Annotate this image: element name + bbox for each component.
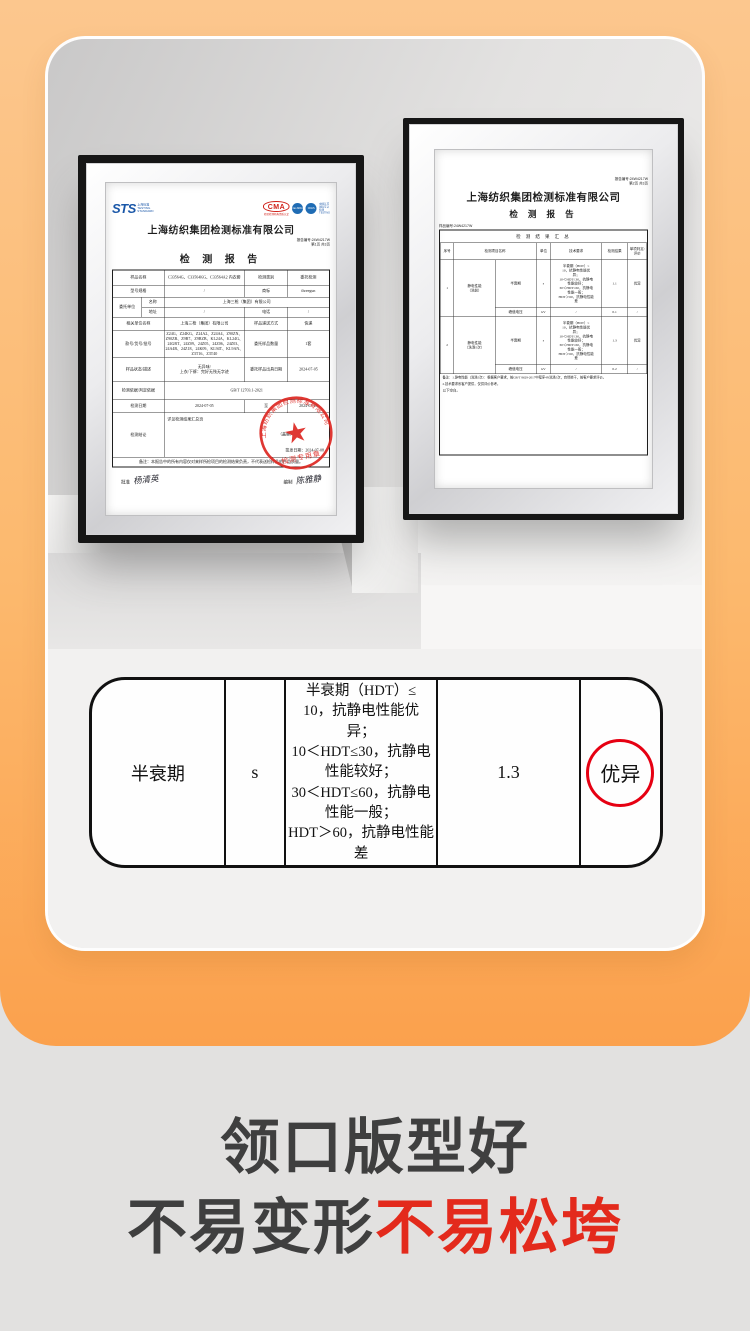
right-certificate-paper: 报告编号:24W4217W 第2页 共3页 上海纺织集团检测标准有限公司 检 测… (435, 150, 652, 488)
display-stage: STS 上海标准 TESTING STANDARD CMA 检验检测机构资质认定… (45, 36, 705, 951)
left-certificate-frame: STS 上海标准 TESTING STANDARD CMA 检验检测机构资质认定… (78, 155, 364, 543)
sample-number: 样品编号:24W4217W (439, 224, 648, 229)
cell-label: 商标 (245, 285, 288, 297)
cell-requirement: 半衰期（HDT）≤ 10，抗静电性能优 异； 10＜HDT≤30，抗静电 性能较… (551, 317, 602, 365)
cell-value: threegun (288, 285, 330, 297)
cell-unit: s (536, 260, 551, 308)
cell-eval: / (628, 365, 647, 374)
header-cell: 技术要求 (551, 243, 602, 260)
cell-label: 相关单位名称 (113, 317, 165, 330)
cell-label: 地址 (142, 307, 165, 317)
certification-logos: STS 上海标准 TESTING STANDARD CMA 检验检测机构资质认定… (112, 197, 330, 220)
cell-value: 委托检测 (288, 270, 330, 285)
caption-line-1: 领口版型好 (0, 1108, 750, 1188)
cell-no: 2 (440, 317, 454, 374)
cell-unit: kV (536, 365, 551, 374)
left-frame-mat: STS 上海标准 TESTING STANDARD CMA 检验检测机构资质认定… (86, 163, 356, 535)
approver-signature: 批准 杨清英 (121, 473, 159, 486)
sts-logo-subtext: 上海标准 TESTING STANDARD (137, 203, 153, 213)
header-cell: 检测项目名称 (454, 243, 536, 260)
table-row: 地址 / 电话 / (113, 307, 330, 317)
cma-oval-icon: CMA (263, 201, 289, 212)
report-meta: 报告编号:24W4217W 第2页 共3页 (439, 177, 648, 186)
cell-value: / (164, 307, 245, 317)
cell-eval: 优异 (628, 260, 647, 308)
cell-label: 委托样品出具日期 (245, 358, 288, 382)
header-cell: 检测结果 (601, 243, 627, 260)
cell-label: 检测依据/判定依据 (113, 382, 165, 400)
cell-item: 峰值电压 (495, 365, 536, 374)
sts-logo-text: STS (112, 201, 136, 217)
cell-result: 0.2 (601, 365, 627, 374)
page-number: 第2页 共3页 (439, 182, 648, 187)
signature-handwriting: 陈雅静 (295, 471, 322, 486)
cell-result: 1.1 (601, 260, 627, 308)
cma-subtext: 检验检测机构资质认定 (264, 213, 289, 217)
half-life-summary-table: 半衰期 s 半衰期（HDT）≤ 10，抗静电性能优 异； 10＜HDT≤30，抗… (89, 677, 663, 868)
accreditation-badges: CMA 检验检测机构资质认定 ilac-MRA CNAS 中国认可 国际互认 检… (263, 201, 330, 216)
results-box: 检 测 结 果 汇 总 序号 检测项目名称 单位 技术要求 检测结果 单项判定/… (439, 230, 648, 456)
cell-unit: s (536, 317, 551, 365)
conclusion-text: 详见检测结果汇总页 (167, 417, 203, 422)
table-row: 样品状态/描述 无异味/ 上衣/下裤：完好无残无字迹 委托样品出具日期 2024… (113, 358, 330, 382)
summary-eval: 优异 (579, 680, 660, 865)
table-title: 检 测 结 果 汇 总 (440, 231, 647, 243)
table-title-row: 检 测 结 果 汇 总 (440, 231, 647, 243)
cell-label: 电话 (245, 307, 288, 317)
cell-value: C33564G、C33564KG、C33564A2 内衣套 (164, 270, 245, 285)
cell-value: / (164, 285, 245, 297)
cell-label: 型号规格 (113, 285, 165, 297)
summary-result: 1.3 (436, 680, 579, 865)
cell-value: 2024-07-05 (164, 400, 245, 413)
cell-value: Z24G、Z24KG、Z24A2、Z24A4、Z90ZN、Z90ZB、Z9B7、… (164, 330, 245, 358)
caption-line2-red: 不易松垮 (375, 1194, 623, 1261)
table-row: 相关单位名称 上海三枪（集团）有限公司 样品递送方式 快递 (113, 317, 330, 330)
lab-name: 上海纺织集团检测标准有限公司 (112, 222, 330, 237)
sts-logo: STS 上海标准 TESTING STANDARD (112, 201, 154, 217)
table-row: 样品名称 C33564G、C33564KG、C33564A2 内衣套 检测类别 … (113, 270, 330, 285)
summary-item: 半衰期 (92, 680, 224, 865)
table-row: 款号/货号/批号 Z24G、Z24KG、Z24A2、Z24A4、Z90ZN、Z9… (113, 330, 330, 358)
cell-value: 无异味/ 上衣/下裤：完好无残无字迹 (164, 358, 245, 382)
cell-label: 样品递送方式 (245, 317, 288, 330)
cell-no: 1 (440, 260, 454, 317)
cell-item: 半衰期 (495, 317, 536, 365)
cell-requirement: / (551, 308, 602, 317)
report-title: 检 测 报 告 (439, 207, 648, 220)
summary-requirement: 半衰期（HDT）≤ 10，抗静电性能优 异； 10＜HDT≤30，抗静电 性能较… (284, 680, 436, 865)
ilac-mra-badge-icon: ilac-MRA (292, 203, 303, 214)
eval-text: 优异 (600, 758, 640, 787)
cell-value: / (288, 307, 330, 317)
summary-unit: s (224, 680, 284, 865)
cell-label: 样品状态/描述 (113, 358, 165, 382)
cnas-badge-icon: CNAS (306, 203, 317, 214)
cell-eval: 优异 (628, 317, 647, 365)
header-cell: 序号 (440, 243, 454, 260)
left-certificate-paper: STS 上海标准 TESTING STANDARD CMA 检验检测机构资质认定… (106, 183, 336, 515)
cell-requirement: / (551, 365, 602, 374)
results-table: 检 测 结 果 汇 总 序号 检测项目名称 单位 技术要求 检测结果 单项判定/… (440, 231, 647, 375)
cell-item-group: 静电性能 （洗涤5次） (454, 317, 495, 374)
cell-item-group: 静电性能 （洗前） (454, 260, 495, 317)
table-row: 1 静电性能 （洗前） 半衰期 s 半衰期（HDT）≤ 10，抗静电性能优 异；… (440, 260, 647, 308)
cell-unit: kV (536, 308, 551, 317)
cell-value: 1套 (288, 330, 330, 358)
cell-value: 上海三枪（集团）有限公司 (164, 297, 329, 307)
cell-label: 检测日期 (113, 400, 165, 413)
signature-handwriting: 杨清英 (132, 471, 159, 486)
page-number: 第1页 共3页 (112, 243, 330, 248)
table-header-row: 序号 检测项目名称 单位 技术要求 检测结果 单项判定/ 评价 (440, 243, 647, 260)
lab-name: 上海纺织集团检测标准有限公司 (439, 189, 648, 204)
accreditation-note: 中国认可 国际互认 检测 TESTING (319, 203, 330, 215)
report-meta: 报告编号:24W4217W 第1页 共3页 (112, 238, 330, 247)
table-row: 委托单位 名称 上海三枪（集团）有限公司 (113, 297, 330, 307)
right-certificate-frame: 报告编号:24W4217W 第2页 共3页 上海纺织集团检测标准有限公司 检 测… (403, 118, 684, 520)
caption-line-2: 不易变形不易松垮 (0, 1188, 750, 1268)
cell-eval: / (628, 308, 647, 317)
cell-result: 1.3 (601, 317, 627, 365)
cell-label: 样品名称 (113, 270, 165, 285)
svg-text:★: ★ (281, 415, 312, 450)
table-row: 2 静电性能 （洗涤5次） 半衰期 s 半衰期（HDT）≤ 10，抗静电性能优 … (440, 317, 647, 365)
cell-value: 上海三枪（集团）有限公司 (164, 317, 245, 330)
cell-requirement: 半衰期（HDT）≤ 10，抗静电性能优 异； 10＜HDT≤30，抗静电 性能较… (551, 260, 602, 308)
caption-line2-dark: 不易变形 (127, 1194, 375, 1261)
cell-label: 检测类别 (245, 270, 288, 285)
red-stamp-icon: 上海纺织集团检测标准有限公司 ★ 检测专用章 (249, 386, 336, 481)
cell-label: 委托样品数量 (245, 330, 288, 358)
red-circle-highlight: 优异 (586, 739, 654, 807)
signature-label: 批准 (121, 479, 130, 486)
cell-result: 0.1 (601, 308, 627, 317)
cell-item: 峰值电压 (495, 308, 536, 317)
header-cell: 单位 (536, 243, 551, 260)
cell-label: 名称 (142, 297, 165, 307)
header-cell: 单项判定/ 评价 (628, 243, 647, 260)
report-title: 检 测 报 告 (112, 251, 330, 266)
cell-item: 半衰期 (495, 260, 536, 308)
cma-logo: CMA 检验检测机构资质认定 (263, 201, 289, 216)
right-frame-mat: 报告编号:24W4217W 第2页 共3页 上海纺织集团检测标准有限公司 检 测… (409, 124, 678, 514)
cell-label: 检测结论 (113, 413, 165, 458)
cell-value: 快递 (288, 317, 330, 330)
table-row: 型号规格 / 商标 threegun (113, 285, 330, 297)
product-detail-page: STS 上海标准 TESTING STANDARD CMA 检验检测机构资质认定… (0, 0, 750, 1331)
blank-below-note: 以下空白。 (440, 387, 647, 394)
signature-label: 编制 (283, 479, 292, 486)
cell-label: 委托单位 (113, 297, 142, 317)
cell-value: 2024-07-05 (288, 358, 330, 382)
cell-label: 款号/货号/批号 (113, 330, 165, 358)
marketing-caption: 领口版型好 不易变形不易松垮 (0, 1108, 750, 1268)
